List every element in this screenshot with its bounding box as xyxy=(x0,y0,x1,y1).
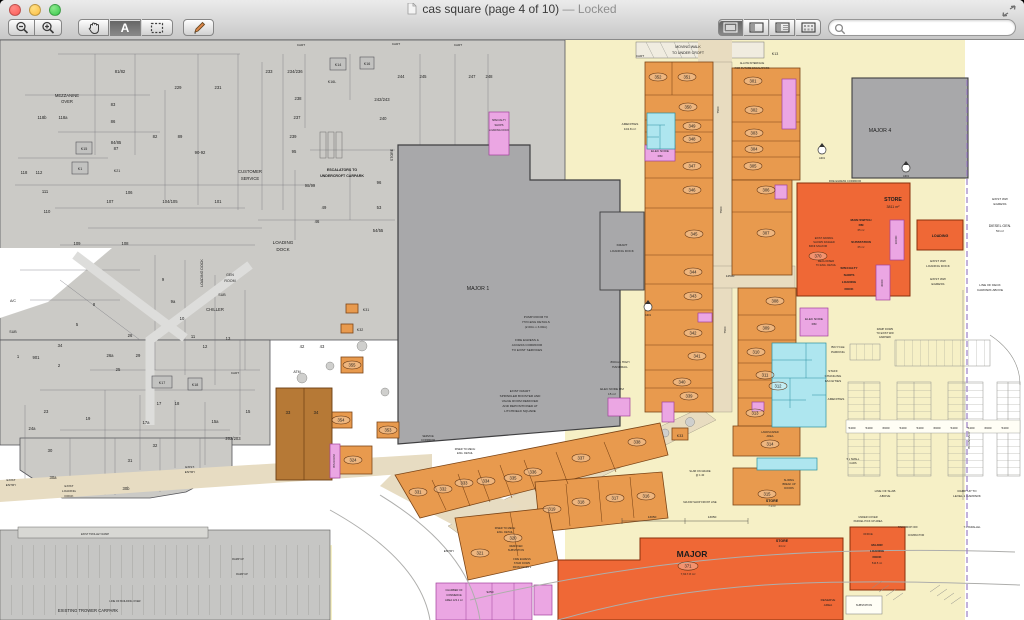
shop-number: 318 xyxy=(578,500,586,505)
dim: 9250 xyxy=(487,590,494,594)
kmart-note: LITCHFIELD SQUARE xyxy=(504,409,536,413)
unit-label: 24a xyxy=(29,426,37,431)
shop-number: 304 xyxy=(751,147,759,152)
unit-label: 107 xyxy=(107,199,115,204)
loading-label: LOADING xyxy=(932,234,949,238)
unit-label: 43 xyxy=(320,344,325,349)
chamber-label: COMMERCE xyxy=(446,593,462,597)
bay-dim: 6600 xyxy=(985,426,992,430)
landscaped-label: LANDSCAPED xyxy=(761,430,779,434)
service-corridor-note: SERVICE xyxy=(422,434,434,438)
amenities-walk xyxy=(757,458,817,470)
shopfront-note: MAJOR SHOP FRONT LINE xyxy=(683,500,716,504)
customer-service-label: CUSTOMER xyxy=(238,169,262,174)
mezzanine-label: OVER xyxy=(61,99,73,104)
ramp-down-note: TO EXIST WW xyxy=(876,331,894,335)
unit-label: 89 xyxy=(178,134,183,139)
bay-dim: 5400 xyxy=(951,426,958,430)
shop-number: 353 xyxy=(385,428,393,433)
major1-label: MAJOR 1 xyxy=(467,286,490,292)
unit-label: 9a xyxy=(171,299,176,304)
shop-number: 340 xyxy=(679,380,687,385)
shop-number: 303 xyxy=(751,131,759,136)
unit-label: 111 xyxy=(42,189,49,194)
compactor-label: COMPACTOR xyxy=(908,533,925,537)
major4-label: MAJOR 4 xyxy=(869,128,892,134)
fire-corridor-note: TO EXIST SERVICES xyxy=(512,348,542,352)
elec-node-label: ELEC NODE xyxy=(651,149,669,153)
staff-label: STAFF xyxy=(828,369,838,373)
kiosk-k32-block xyxy=(341,324,353,333)
ramp-up-note: LEVEL 1 CARPARK xyxy=(953,494,982,498)
exist-entry-label: ENTRY xyxy=(6,483,16,487)
unit-label: 244 xyxy=(398,74,406,79)
ww-egress-label: EXIST WW xyxy=(992,197,1008,201)
customer-service-label: SERVICE xyxy=(241,176,260,181)
mezzanine-label: MEZZANINE xyxy=(55,93,79,98)
unit-label: 30b xyxy=(123,486,131,491)
unit-label: 26a xyxy=(107,353,115,358)
preview-window: cas square (page 4 of 10) — Locked A xyxy=(0,0,1024,620)
diesel-gen-label: DIESEL GEN. xyxy=(989,224,1011,228)
gen-room-label: ROOM xyxy=(224,279,235,283)
unit-label: 10 xyxy=(180,316,185,321)
specialty-loading-label: SPECIALTY xyxy=(840,266,858,270)
titlebar: cas square (page 4 of 10) — Locked xyxy=(0,2,1024,18)
unit-label: 82 xyxy=(153,134,158,139)
major-loading-label: LOADING xyxy=(870,549,885,553)
unit-label: 53 xyxy=(377,205,382,210)
unit-label: 18 xyxy=(175,401,180,406)
shop-number: 309 xyxy=(763,326,771,331)
elec-node-area: 15 m² xyxy=(608,392,616,396)
amenities-area: 104.8 m² xyxy=(624,127,636,131)
specialty-dock-label: LOADING DOCK xyxy=(489,128,509,132)
exist-loading-label: DOCK xyxy=(65,494,75,498)
unit-label: 98/99 xyxy=(305,183,316,188)
chiller-label: CHILLER xyxy=(206,307,224,312)
unit-label: 23 xyxy=(44,409,49,414)
parcel-note: UNDER COVER xyxy=(858,515,877,519)
shop-number: 332 xyxy=(440,487,448,492)
unit-label: 245 xyxy=(420,74,428,79)
specialty-loading-label: DOCK xyxy=(844,287,854,291)
unit-label: 15 xyxy=(246,409,251,414)
unit-label: 17a xyxy=(143,420,151,425)
cart-label: CART xyxy=(392,42,400,46)
exist-loading-label: EXIST xyxy=(65,484,74,488)
kiosk-label: K17 xyxy=(159,381,165,385)
window-locked-label: — Locked xyxy=(563,2,617,16)
pump-note: (2.00m x 3.00m) xyxy=(525,325,548,329)
store24-label: STORE xyxy=(776,539,789,543)
shop-number: 319 xyxy=(549,507,557,512)
unit-label: 110 xyxy=(44,209,51,214)
mini-major-label: MINI MAJOR xyxy=(809,244,828,248)
kiosk-label: K16 xyxy=(364,62,370,66)
chamber-label: CHAMBER OF xyxy=(445,588,463,592)
ac-label: A/C xyxy=(10,299,16,303)
unit-label: 46 xyxy=(315,219,320,224)
unit-label: 238 xyxy=(295,96,303,101)
shop-number: 335 xyxy=(510,476,518,481)
removed-substation-note: REMOVED xyxy=(509,544,522,548)
shop-number: 336 xyxy=(530,470,538,475)
fire-corridor-note: ACCESS CORRIDOR xyxy=(512,343,543,347)
shop-number: 338 xyxy=(634,440,642,445)
unit-label: 90-92 xyxy=(195,150,206,155)
store71-label: STORE xyxy=(766,499,779,503)
cart-label: CART xyxy=(454,43,462,47)
bay-dim: 5400 xyxy=(866,426,873,430)
shop-number: 312 xyxy=(775,384,783,389)
fire-stair-note: FIRE EGRESS xyxy=(513,557,531,561)
slab-note: LINE OF SLAB xyxy=(875,489,896,493)
shop-number: 321 xyxy=(477,551,485,556)
shop-number: 370 xyxy=(815,254,823,259)
annotate-tool-button[interactable] xyxy=(183,19,214,36)
building-line-note: LINE OF BUILDING OVER xyxy=(109,599,140,603)
view-table-of-contents-button[interactable] xyxy=(770,19,795,36)
amenities-east-label: AMENITIES xyxy=(828,397,845,401)
shop-number: 333 xyxy=(461,481,469,486)
ww-egress-label: EGRESS xyxy=(994,202,1007,206)
bay-dim: 6600 xyxy=(883,426,890,430)
unit-label: 202/203 xyxy=(225,436,241,441)
shop-number: 339 xyxy=(686,394,694,399)
shop-number: 337 xyxy=(578,456,586,461)
fire-stair-note: FROM LEVEL 1 xyxy=(513,565,532,569)
bicycle-label: PARKING xyxy=(831,350,845,354)
cart-label: CART xyxy=(297,43,305,47)
shop-number: 355 xyxy=(349,363,357,368)
trolley-ramp xyxy=(18,527,208,538)
unit-label: 247 xyxy=(469,74,477,79)
fullscreen-icon[interactable] xyxy=(1002,4,1016,16)
unit-label: 26 xyxy=(128,333,133,338)
shop-number: 313 xyxy=(752,411,760,416)
tree xyxy=(381,388,389,396)
unit-label: 87 xyxy=(114,146,119,151)
parcel-note: PARCEL PICK UP AREA xyxy=(854,519,883,523)
unit-label: 112 xyxy=(36,170,43,175)
bicycle-label: BICYCLE xyxy=(831,345,844,349)
shop-number: 324 xyxy=(350,458,358,463)
dim: 13050 xyxy=(648,515,657,519)
unit-label: 31 xyxy=(128,458,133,463)
document-canvas[interactable]: 81/82 229 231 83 86 84/85 87 82 89 90-92… xyxy=(0,40,1024,620)
kiosk-label: K32 xyxy=(357,328,363,332)
escalators-label: ESCALATORS TO xyxy=(327,168,358,172)
kiosk-label: K31 xyxy=(363,308,369,312)
zoom-out-button[interactable] xyxy=(8,19,35,36)
unit-label: 229 xyxy=(175,85,183,90)
specialty-dock-label: SPECIALTY xyxy=(492,118,506,122)
unit-label: 42 xyxy=(300,344,305,349)
handrail-note: 860mm HIGH xyxy=(611,360,630,364)
kmart-note: AND REPOSITIONED AT xyxy=(502,404,537,408)
shop-number: 316 xyxy=(643,494,651,499)
small-cars-label: 5 x SMALL xyxy=(847,457,860,461)
service-corridor-note: CORRIDOR xyxy=(421,438,435,442)
view-content-only-button[interactable] xyxy=(718,19,743,36)
shop-number: 331 xyxy=(415,490,423,495)
unit-label: 108 xyxy=(122,241,130,246)
kiosk-label: K33 xyxy=(677,434,683,438)
atm-label: ATM xyxy=(293,370,300,374)
zoom-in-button[interactable] xyxy=(35,19,62,36)
unit-label: 49 xyxy=(322,205,327,210)
cart-label: CART xyxy=(231,371,239,375)
top-bays xyxy=(895,340,990,366)
sliding-doors-note: SLIDING xyxy=(784,478,794,482)
shop-number: 349 xyxy=(689,124,697,129)
section-marker-label: A301 xyxy=(645,313,652,317)
unit-label: 30a xyxy=(50,475,58,480)
unit-label: 118a xyxy=(58,115,68,120)
unit-label: 84/85 xyxy=(111,140,122,145)
unit-label: 17 xyxy=(157,401,162,406)
unit-label: 109 xyxy=(74,241,82,246)
bicycle-bays xyxy=(850,344,880,360)
shop-number: 310 xyxy=(753,350,761,355)
note: FOR FUTURE ESCALATORS xyxy=(735,66,770,70)
kiosk-label: K21 xyxy=(114,169,120,173)
elec-node-room-mid xyxy=(608,398,630,416)
major-loading-label: DOCK xyxy=(872,555,882,559)
ramp-down-note: CARPARK xyxy=(879,335,892,339)
shop-number: 305 xyxy=(750,164,758,169)
escalators-label: UNDERCROFT CARPARK xyxy=(320,174,364,178)
specialty-dock-label: SHOPS xyxy=(494,123,503,127)
unit-label: 242/243 xyxy=(374,97,390,102)
riser-note2: ENG. DETAIL xyxy=(457,451,474,455)
bay-dim: 5400 xyxy=(1002,426,1009,430)
bay-dim: 6600 xyxy=(934,426,941,430)
loading-dock-label: LOADING xyxy=(273,240,294,245)
ramp-up-label: RAMP UP xyxy=(236,572,248,576)
ww-loading-label: LOADING DOCK xyxy=(926,264,951,268)
slab-grade-note: @ 1:40 xyxy=(696,473,705,477)
entry-label: ENTRY xyxy=(444,549,454,553)
ramp-down-note: RAMP DOWN xyxy=(877,327,894,331)
shop-number: 348 xyxy=(689,137,697,142)
note: ALLOW INTERFACE xyxy=(740,61,765,65)
brown-shops xyxy=(276,388,332,480)
ww-egress2-label: EXIST WW xyxy=(930,277,946,281)
shop-number: 371 xyxy=(685,564,693,569)
kiosk-label: K15 xyxy=(81,147,87,151)
shop-number: 314 xyxy=(767,442,775,447)
text-select-tool-button[interactable]: A xyxy=(110,19,141,36)
ww-loading-label: EXIST WW xyxy=(930,259,946,263)
shop-number: 317 xyxy=(612,496,620,501)
awning-note: EXIST AWNING xyxy=(815,236,834,240)
travelator-block xyxy=(782,79,796,129)
shop-number: 306 xyxy=(763,188,771,193)
elec-node-label: RM xyxy=(812,322,817,326)
fire-egress-corridor-label: FIRE EGRESS CORRIDOR xyxy=(829,179,861,183)
bay-dim: 5400 xyxy=(917,426,924,430)
unit-label: 118b xyxy=(37,115,47,120)
shop-number: 315 xyxy=(764,492,772,497)
unit-label: 106 xyxy=(126,190,134,195)
kiosk-label: K16L xyxy=(328,80,336,84)
main-switch-label: RM xyxy=(859,223,864,227)
elec-node-label: ELEC NODE xyxy=(805,317,823,321)
search-input[interactable] xyxy=(828,19,1016,36)
toolbar: A xyxy=(0,19,1024,37)
unit-label: 237 xyxy=(294,115,302,120)
unit-label: 83 xyxy=(111,102,116,107)
unit-label: 34 xyxy=(314,410,319,415)
kiosk-label: K14 xyxy=(335,63,341,67)
shop-number: 307 xyxy=(763,231,771,236)
small-cars-label: CARS xyxy=(849,461,856,465)
fire-stair-note: STAIR DOWN xyxy=(514,561,531,565)
kiosk-label: K13 xyxy=(772,52,778,56)
shop-number: 347 xyxy=(689,164,697,169)
diesel-gen-area: 50 m² xyxy=(996,229,1004,233)
major-label: MAJOR xyxy=(677,549,708,559)
slab-note: ABOVE xyxy=(880,494,891,498)
unit-label: 29 xyxy=(136,353,141,358)
kiosk-k31-block xyxy=(346,304,358,313)
unit-label: 96 xyxy=(377,180,382,185)
trolley-ramp-label: EXIST TROLLEY RAMP xyxy=(81,532,109,536)
reserve-label: RESERVE xyxy=(821,598,836,602)
unit-label: 12 xyxy=(203,344,208,349)
kiosk-label: K18 xyxy=(192,383,198,387)
parallel-label: 7 x PARALLEL xyxy=(963,525,981,529)
shop-number: 354 xyxy=(338,418,346,423)
shop-number: 311 xyxy=(762,373,769,378)
office-label: OFFICE xyxy=(863,532,873,536)
substation2-label: SUBSTATION xyxy=(856,603,872,607)
kmart-loading-label: LOADING DOCK xyxy=(610,249,635,253)
dim: 6000 xyxy=(880,279,884,286)
gen-room-label: GEN xyxy=(226,273,234,277)
north-mall-corridor xyxy=(713,62,732,412)
dim: 7500 xyxy=(719,206,723,213)
unit-label: 101 xyxy=(215,199,223,204)
cart-label: CART xyxy=(636,54,644,58)
section-marker-label: A301 xyxy=(903,174,910,178)
amenities-north xyxy=(647,113,675,149)
kiosk-label: K1 xyxy=(78,167,82,171)
specialty-loading-label: LOADING xyxy=(842,280,857,284)
unit-label: 13 xyxy=(226,336,231,341)
sliding-doors-note: DOORS xyxy=(784,486,794,490)
shop-number: 341 xyxy=(694,354,702,359)
chamber-area: AREA 123.1 m² xyxy=(445,598,463,602)
store-vertical-label: STORE xyxy=(390,148,394,161)
handrail-note: HANDRAIL xyxy=(612,365,628,369)
slab-grade-note: SLAB ON GRADE xyxy=(689,469,710,473)
shop-number: 334 xyxy=(483,479,491,484)
unit-label: 81/82 xyxy=(115,69,126,74)
dim: 14500 xyxy=(726,274,735,278)
substation-area: 65 m² xyxy=(858,245,865,249)
kmart-note: SPRINKLER BOOSTER AND xyxy=(500,394,542,398)
window-header: cas square (page 4 of 10) — Locked A xyxy=(0,0,1024,40)
ramp-up-label: RAMP UP xyxy=(232,557,244,561)
major-area-label: 7,617.8 m² xyxy=(681,572,696,576)
shop-number: 350 xyxy=(685,105,693,110)
bay-dim: 5400 xyxy=(968,426,975,430)
unit-label: 30 xyxy=(48,448,53,453)
view-contact-sheet-button[interactable] xyxy=(796,19,821,36)
rect-select-tool-button[interactable] xyxy=(142,19,173,36)
unit-label: 34 xyxy=(58,343,63,348)
shop-number: 342 xyxy=(690,331,698,336)
riser-note2: RISER TO MECH xyxy=(455,447,476,451)
dim: 13050 xyxy=(708,515,717,519)
landscaped-label: AREA xyxy=(766,434,773,438)
shop-number: 320 xyxy=(510,536,518,541)
amenities-label: AMENITIES xyxy=(622,122,639,126)
move-tool-button[interactable] xyxy=(78,19,109,36)
bay-dim: 5400 xyxy=(900,426,907,430)
awning-note: SHOWN DASHED xyxy=(813,240,835,244)
shop-number: 344 xyxy=(690,270,698,275)
unit-label: 239 xyxy=(290,134,298,139)
floor-plan: 81/82 229 231 83 86 84/85 87 82 89 90-92… xyxy=(0,40,1024,620)
unit-label: 19 xyxy=(86,416,91,421)
bay-dim: 5400 xyxy=(849,426,856,430)
elec-node-label: RM xyxy=(658,154,663,158)
moving-walk-label: TO UNDER CROFT xyxy=(672,51,705,55)
exist-entry-label: EXIST xyxy=(7,478,16,482)
unit-label: 231 xyxy=(215,85,223,90)
unit-label: 11 xyxy=(191,334,196,339)
dim: 10000 xyxy=(894,235,898,244)
unit-label: 240 xyxy=(380,116,388,121)
document-icon xyxy=(407,3,417,18)
pump-note: HYD.ENG DETAILS xyxy=(522,320,550,324)
unit-label: 32 xyxy=(153,443,158,448)
exist-loading-label: LOADING xyxy=(62,489,77,493)
unit-label: 901 xyxy=(33,355,41,360)
kmart-loading-label: KMART xyxy=(617,243,628,247)
staff-label: CHANGING xyxy=(825,374,842,378)
store71-area: 7.1 m² xyxy=(768,504,775,508)
shop-number: 352 xyxy=(655,75,663,80)
specialty-loading-label: SHOPS xyxy=(844,273,855,277)
substation-label: SUBSTATION xyxy=(851,240,871,244)
shop-number: 308 xyxy=(772,299,780,304)
moving-walk-label: MOVING WALK xyxy=(675,45,701,49)
sub-label: SUB xyxy=(9,330,17,334)
trower-carpark-label: EXISTING TROWER CARPARK xyxy=(58,608,119,613)
unit-label: 234/236 xyxy=(287,69,303,74)
deck-note: CARPARK ABOVE xyxy=(977,288,1003,292)
deck-note: LINE OF DECK xyxy=(979,283,1001,287)
shop-number: 351 xyxy=(684,75,692,80)
major-loading-area: 510.5 m² xyxy=(872,561,882,565)
ramp-up-note: RAMP UP TO xyxy=(957,489,977,493)
elec-node-label: ELEC NODE RM xyxy=(600,387,624,391)
unit-label: 25 xyxy=(116,367,121,372)
exist-entry2-label: EXIST. xyxy=(185,465,195,469)
unit-label: 15a xyxy=(212,419,220,424)
store-label: STORE xyxy=(884,197,902,203)
riser-note: ENG. DETAIL xyxy=(497,530,514,534)
shop-number: 302 xyxy=(751,108,759,113)
view-thumbnails-button[interactable] xyxy=(744,19,769,36)
fire-corridor-note: FIRE EGRESS & xyxy=(515,338,540,342)
shop-number: 343 xyxy=(690,294,698,299)
